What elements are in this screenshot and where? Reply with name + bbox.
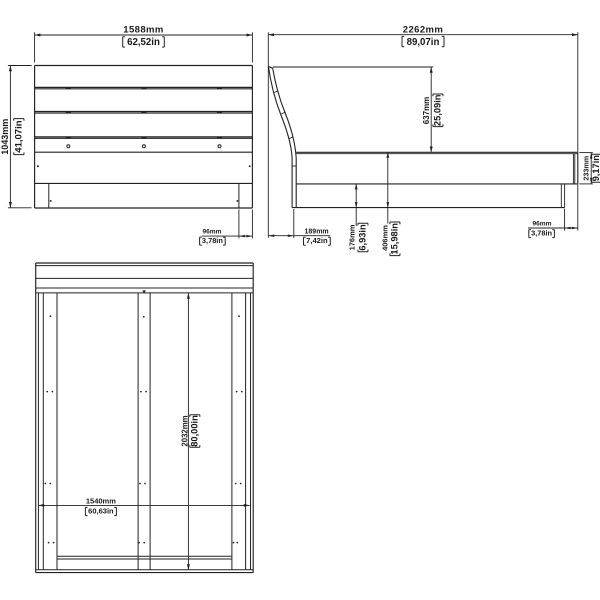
- svg-text:1043mm: 1043mm: [0, 119, 10, 155]
- svg-text:96mm: 96mm: [202, 229, 221, 236]
- svg-text:96mm: 96mm: [532, 221, 551, 228]
- svg-text:1588mm: 1588mm: [123, 25, 163, 36]
- svg-text:189mm: 189mm: [305, 228, 329, 235]
- svg-text:9,17in: 9,17in: [591, 155, 600, 182]
- svg-text:1540mm: 1540mm: [86, 497, 116, 506]
- svg-text:80,00in: 80,00in: [189, 415, 199, 447]
- svg-text:637mm: 637mm: [422, 97, 431, 125]
- svg-text:2262mm: 2262mm: [403, 24, 443, 35]
- svg-text:25,09in: 25,09in: [432, 94, 442, 126]
- svg-text:176mm: 176mm: [348, 224, 357, 250]
- svg-text:41,07in: 41,07in: [13, 120, 24, 152]
- svg-text:2032mm: 2032mm: [181, 415, 190, 446]
- svg-text:15,98in: 15,98in: [389, 223, 399, 255]
- svg-text:6,93in: 6,93in: [357, 224, 367, 251]
- svg-text:3,78in: 3,78in: [202, 236, 223, 245]
- svg-text:7,42in: 7,42in: [306, 236, 328, 245]
- svg-text:233mm: 233mm: [581, 156, 590, 181]
- svg-text:406mm: 406mm: [381, 225, 390, 251]
- svg-text:89,07in: 89,07in: [407, 37, 440, 48]
- svg-text:60,63in: 60,63in: [88, 507, 114, 516]
- svg-text:3,78in: 3,78in: [531, 229, 552, 238]
- svg-text:62,52in: 62,52in: [127, 37, 160, 48]
